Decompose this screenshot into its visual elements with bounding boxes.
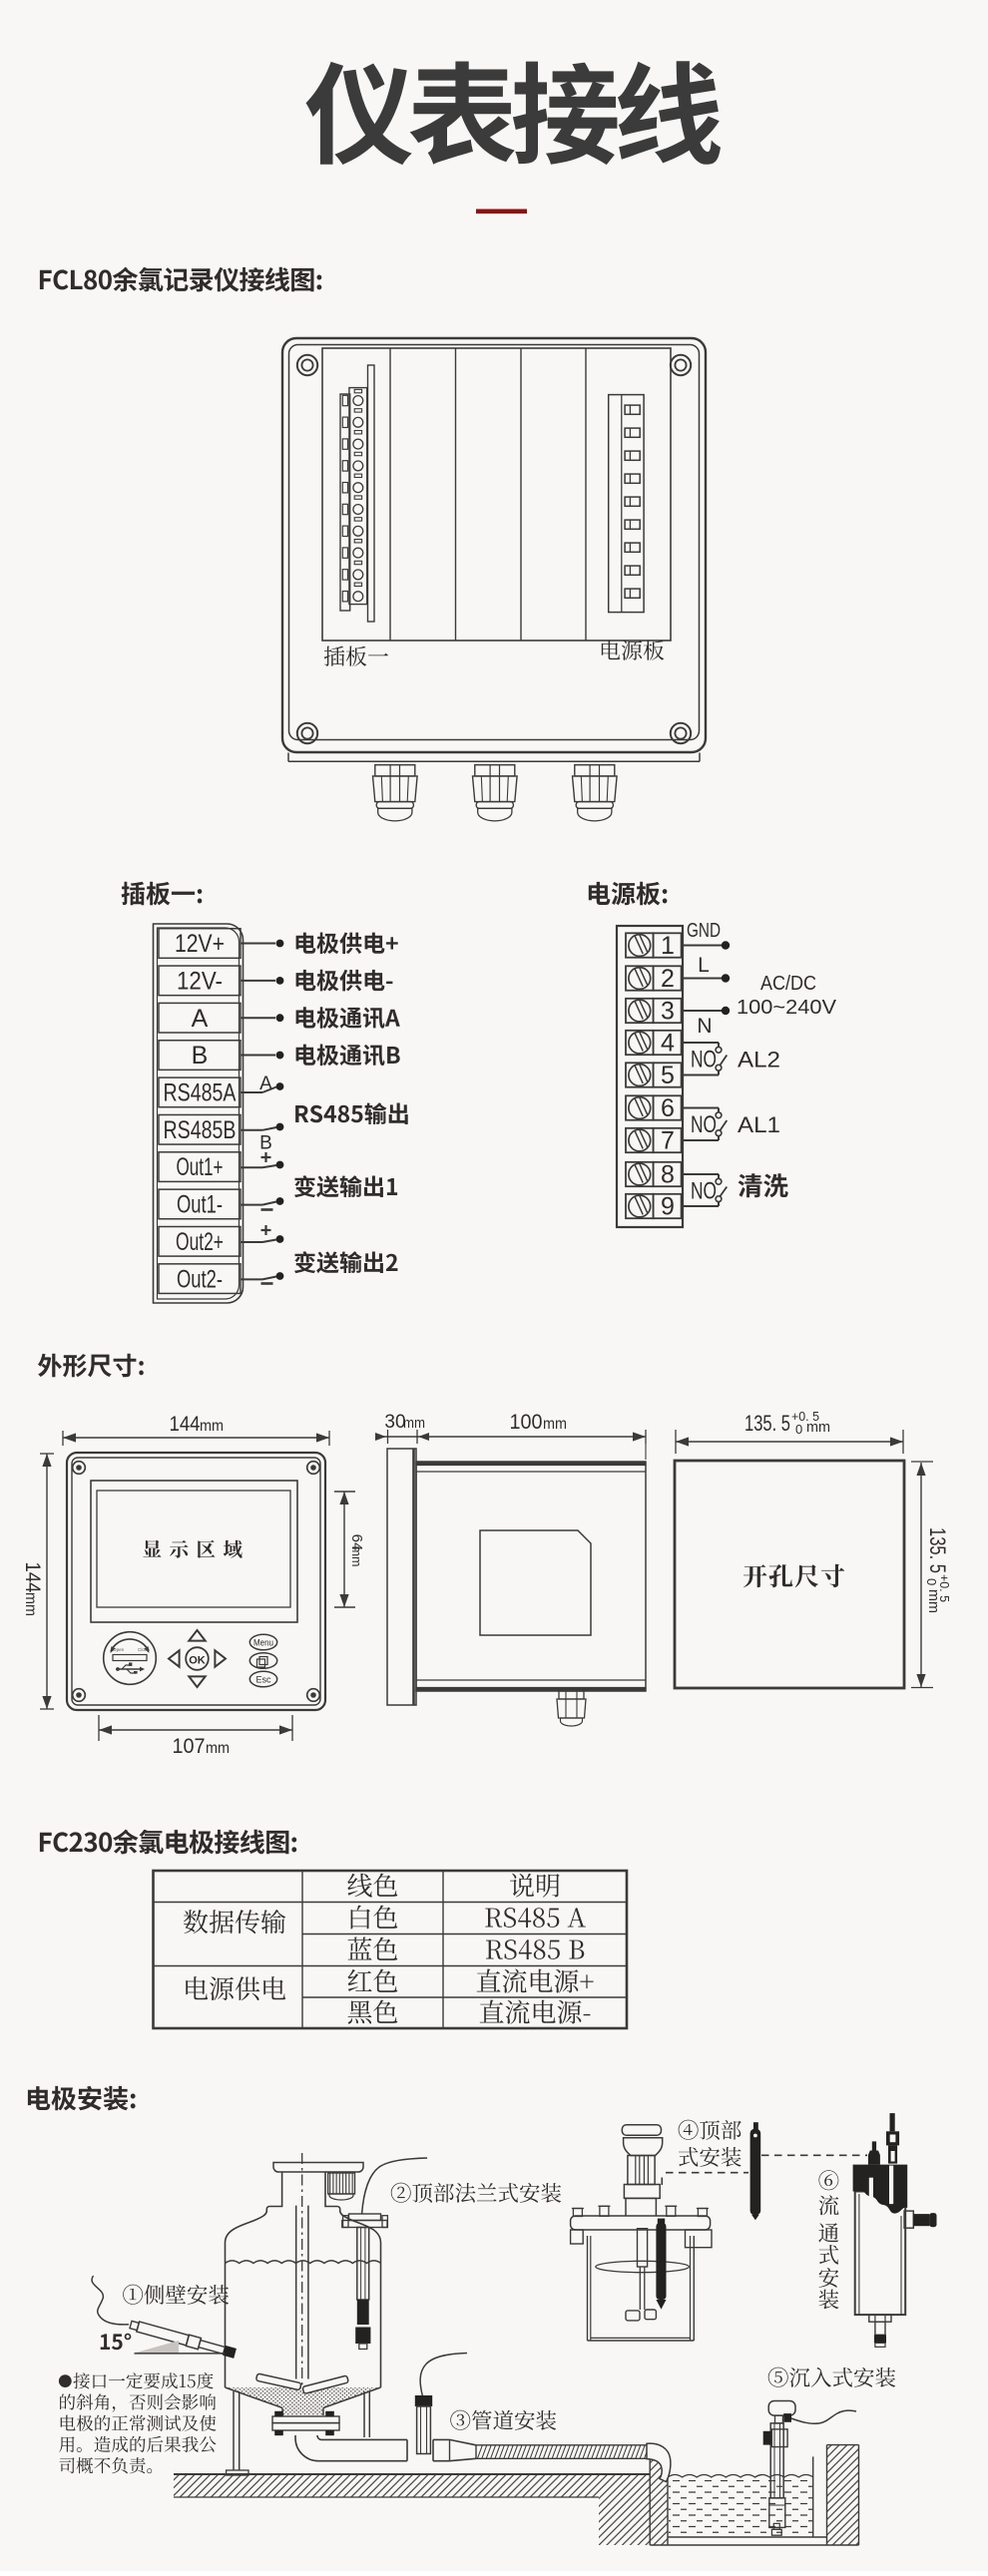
svg-text:mm: mm [349, 1546, 363, 1567]
svg-text:9: 9 [661, 1193, 675, 1221]
svg-text:GND: GND [687, 920, 721, 942]
svg-text:OK: OK [189, 1655, 206, 1667]
svg-text:107: 107 [173, 1735, 206, 1758]
svg-text:Close: Close [138, 1647, 150, 1652]
svg-text:12V-: 12V- [177, 967, 223, 995]
svg-text:144: 144 [170, 1413, 201, 1436]
svg-text:mm: mm [543, 1416, 567, 1433]
svg-text:Esc: Esc [255, 1675, 271, 1685]
svg-text:mm: mm [806, 1419, 830, 1436]
svg-text:3: 3 [661, 998, 675, 1026]
svg-text:Out1-: Out1- [177, 1191, 223, 1219]
svg-text:2: 2 [661, 965, 675, 993]
svg-text:NO: NO [691, 1047, 717, 1073]
svg-text:RS485A: RS485A [164, 1079, 237, 1107]
svg-text:Out2+: Out2+ [176, 1228, 224, 1256]
svg-text:6: 6 [661, 1094, 675, 1122]
svg-text:RS485B: RS485B [164, 1116, 237, 1144]
svg-text:5: 5 [661, 1062, 675, 1089]
svg-text:mm: mm [200, 1418, 224, 1435]
svg-text:AC/DC: AC/DC [760, 973, 816, 995]
svg-text:8: 8 [661, 1161, 675, 1189]
svg-text:4: 4 [661, 1030, 675, 1058]
svg-text:Out1+: Out1+ [177, 1153, 224, 1181]
svg-text:135. 5: 135. 5 [744, 1411, 790, 1436]
svg-text:Menu: Menu [253, 1638, 273, 1648]
svg-text:144: 144 [21, 1562, 44, 1593]
svg-text:B: B [192, 1042, 209, 1070]
svg-text:0: 0 [795, 1422, 802, 1437]
svg-text:NO: NO [691, 1111, 717, 1138]
svg-text:mm: mm [925, 1589, 942, 1613]
svg-text:N: N [697, 1015, 712, 1038]
svg-text:100: 100 [510, 1411, 543, 1434]
svg-text:12V+: 12V+ [175, 930, 225, 958]
svg-text:Out2-: Out2- [177, 1265, 223, 1293]
svg-text:AL1: AL1 [738, 1112, 780, 1137]
svg-text:135. 5: 135. 5 [925, 1527, 950, 1573]
svg-text:Open: Open [113, 1647, 125, 1652]
svg-text:B: B [259, 1133, 272, 1154]
svg-text:1: 1 [661, 932, 675, 960]
svg-text:100~240V: 100~240V [737, 997, 837, 1019]
svg-text:mm: mm [403, 1415, 425, 1432]
svg-text:7: 7 [661, 1127, 675, 1155]
svg-text:NO: NO [691, 1178, 717, 1205]
svg-text:A: A [192, 1005, 209, 1033]
svg-text:AL2: AL2 [738, 1048, 780, 1073]
svg-text:0: 0 [924, 1578, 939, 1585]
svg-text:A: A [259, 1073, 272, 1094]
svg-text:mm: mm [206, 1740, 230, 1757]
svg-text:L: L [698, 954, 710, 977]
svg-text:mm: mm [22, 1592, 39, 1616]
